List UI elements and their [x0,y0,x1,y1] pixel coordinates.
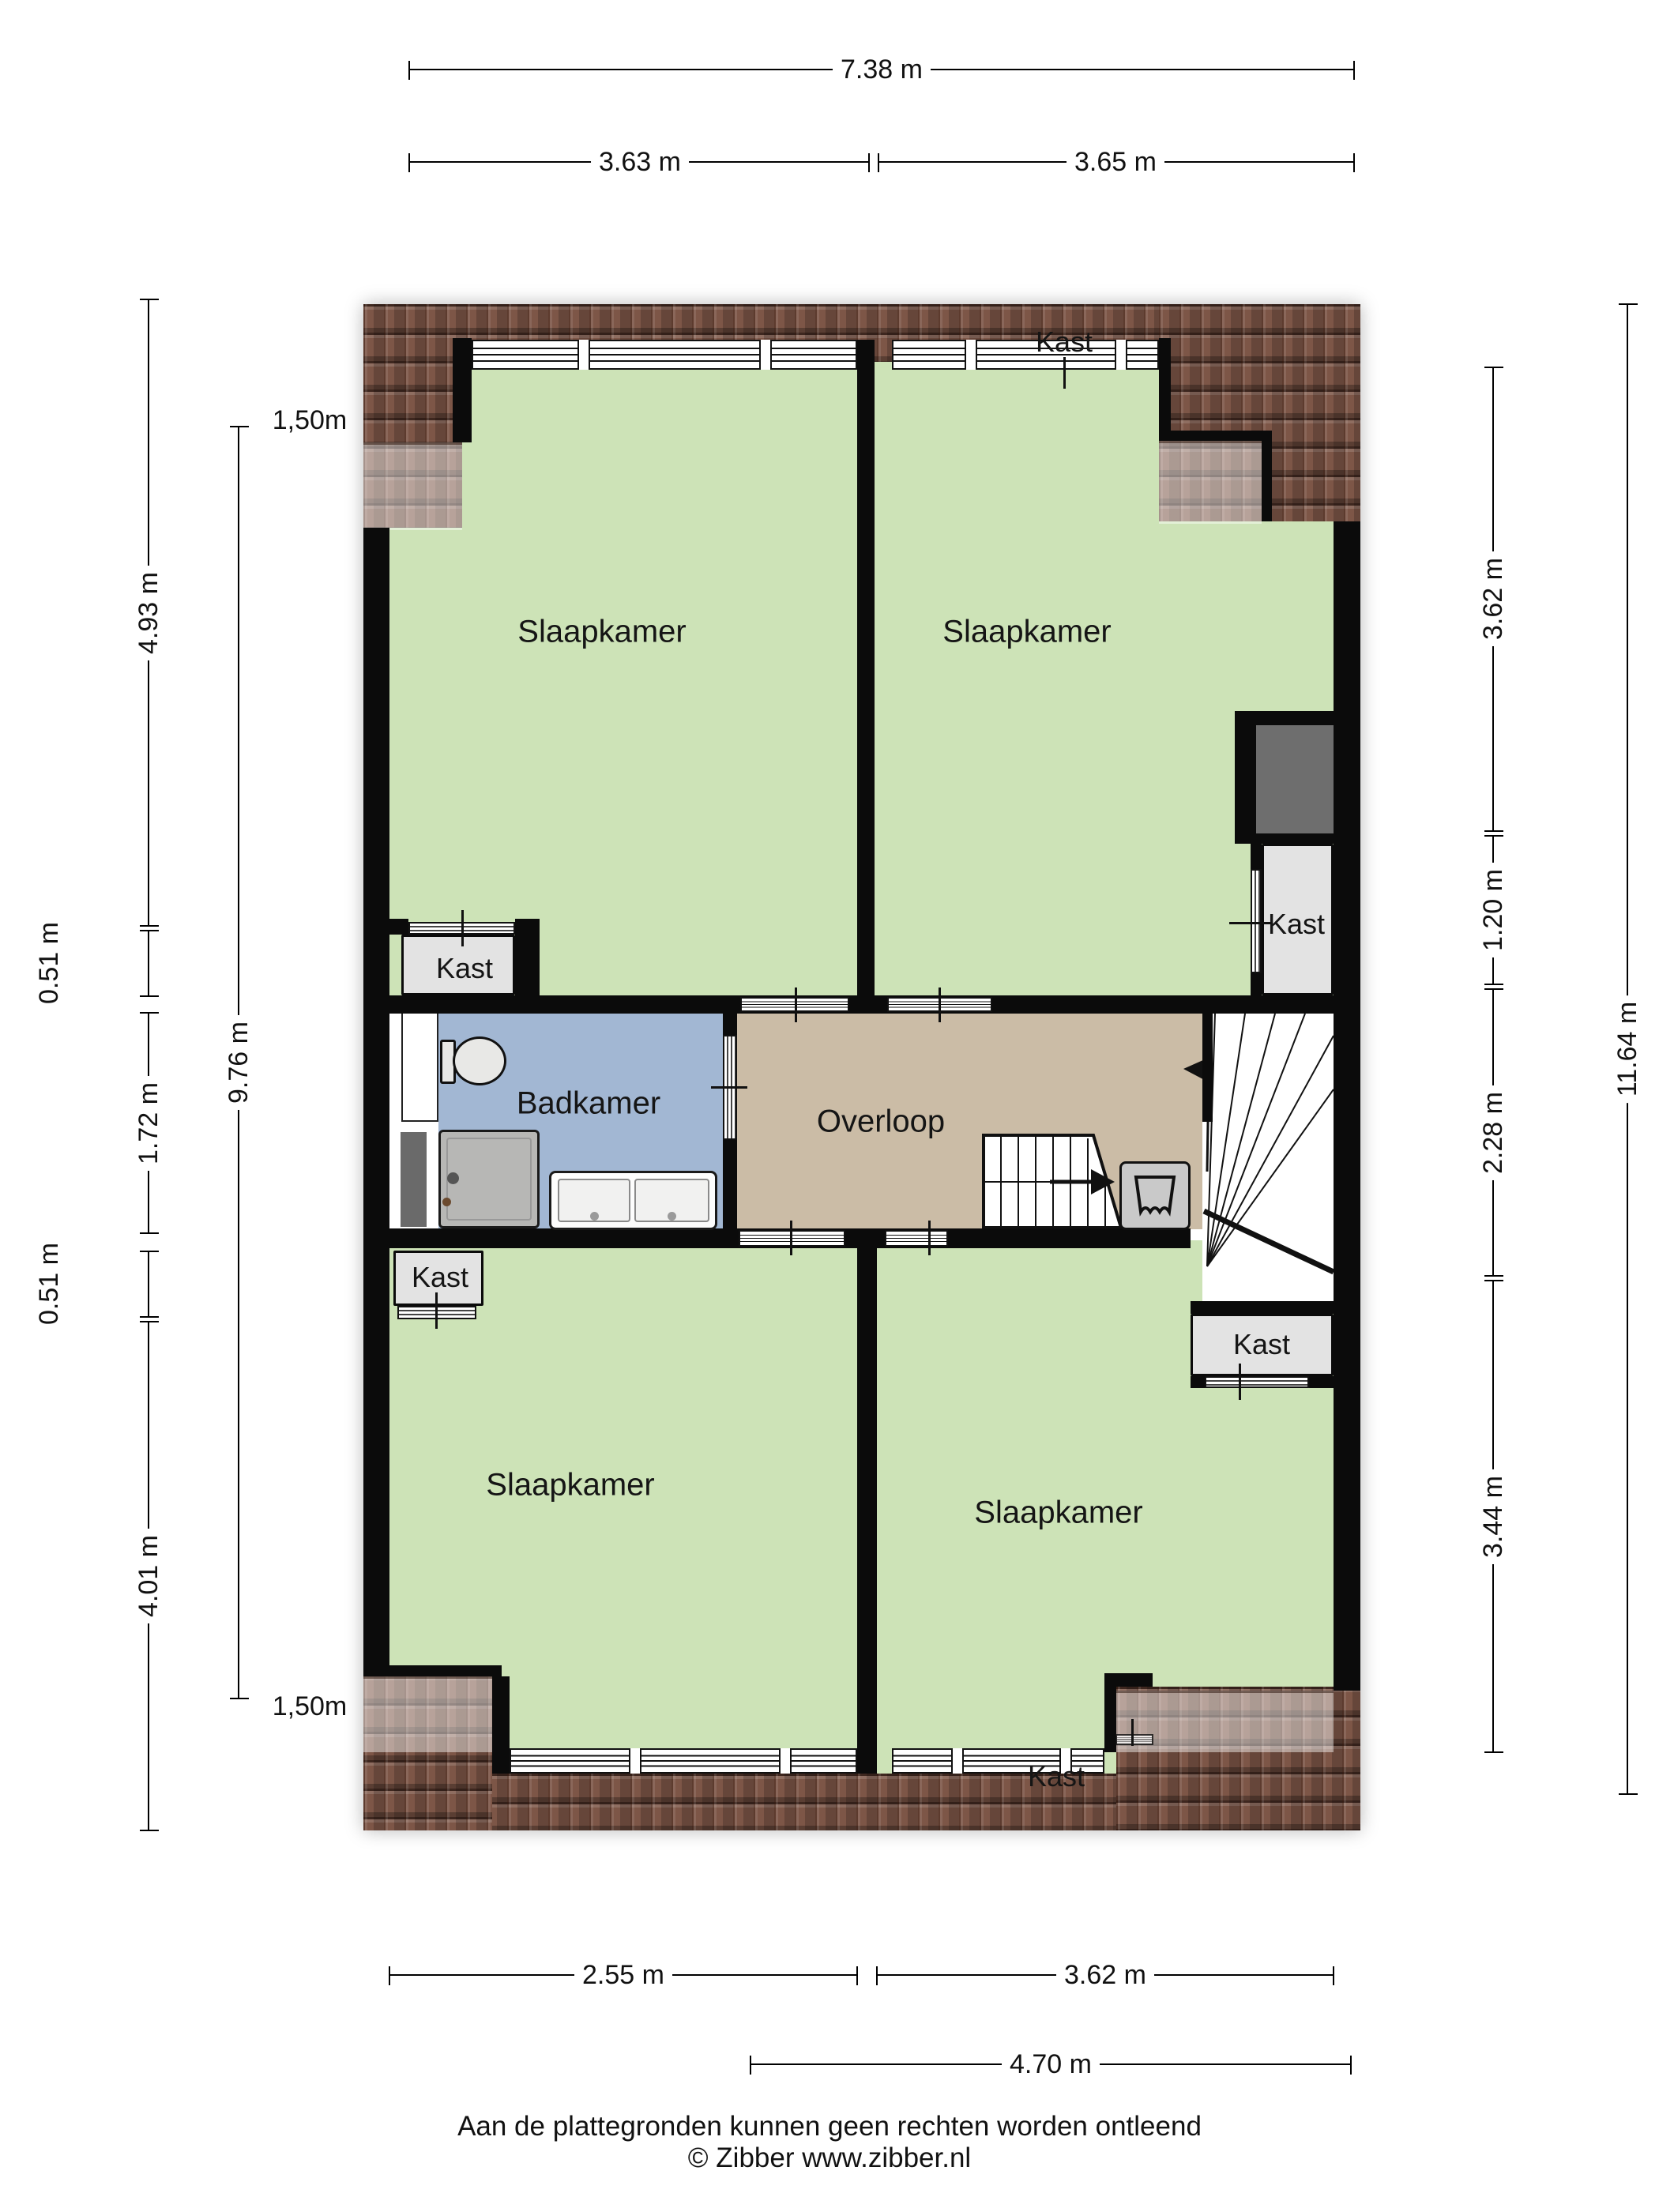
label-closet-mid-left-upper: Kast [436,952,493,985]
wall [1256,833,1334,844]
dim-top-total: 7.38 m [833,55,931,85]
bathroom-void [401,1011,438,1122]
dim-bottom-right-segment: 3.62 m [1056,1960,1154,1990]
dim-tick [140,925,159,927]
label-closet-right-lower: Kast [1233,1328,1290,1361]
dim-tick [1333,1966,1334,1985]
leader-line [1131,1719,1134,1746]
dim-left-segment-1: 0.51 m [36,922,62,1004]
window-mullion [759,340,772,370]
label-bedroom-bottom-right: Slaapkamer [974,1495,1142,1531]
dim-line-left-seg [148,931,149,996]
dim-tick [1484,1751,1503,1753]
wall [1191,1301,1334,1314]
window-roof-bottom-right [1115,1734,1153,1745]
dim-tick [1484,367,1503,368]
dim-tick [140,995,159,997]
roof-lowheight-bottom-left [363,1676,492,1752]
wall [1191,1376,1205,1388]
wall [363,1665,502,1676]
dim-top-right-segment: 3.65 m [1066,147,1164,177]
leader-line [795,987,797,1022]
wall-divider-bottom [857,1242,877,1774]
label-bedroom-top-right: Slaapkamer [942,615,1111,650]
dim-tick [408,61,410,80]
window-mullion [577,340,590,370]
dim-tick [1350,2056,1352,2075]
dim-tick [750,2056,751,2075]
dim-left-inner-total: 9.76 m [222,1015,255,1110]
washbasin-tap-left-icon [590,1212,599,1221]
window-landing-bottom-right [885,1230,948,1247]
dim-tick [408,153,410,172]
dim-tick [140,1830,159,1831]
dim-tick [140,1316,159,1318]
label-closet-roof-bottom: Kast [1028,1760,1085,1793]
leader-line [1229,922,1270,924]
dim-tick [140,1232,159,1234]
leader-line [1063,357,1066,389]
dim-bottom-total: 4.70 m [1002,2049,1100,2079]
dim-right-segment-2: 2.28 m [1477,1085,1510,1180]
leader-line [790,1221,792,1255]
label-bedroom-bottom-left: Slaapkamer [486,1468,654,1503]
wall [1104,1673,1153,1687]
roof-lowheight-top-right [1159,441,1262,524]
label-bathroom: Badkamer [517,1086,660,1122]
window-mullion [951,1748,964,1774]
wall [1171,431,1262,441]
dim-bottom-left-segment: 2.55 m [574,1960,672,1990]
dim-tick [1484,835,1503,837]
window-mullion [965,340,977,370]
dim-tick [1619,1793,1638,1795]
chimney-niche [1256,723,1334,835]
leader-line [1239,1364,1241,1400]
wall [515,919,540,1009]
wall [492,1676,510,1774]
dim-tick [876,1966,878,1985]
wall [389,919,408,935]
wall [1235,711,1334,725]
dim-tick [1484,988,1503,990]
window-top-left [472,340,857,370]
leader-line [461,910,464,946]
shower-head-icon [447,1172,459,1184]
dim-line-left-seg [148,1251,149,1317]
wall-outer-right [1334,521,1360,1691]
dim-tick [1484,830,1503,832]
footer-disclaimer: Aan de plattegronden kunnen geen rechten… [0,2111,1659,2142]
window-mullion [629,1748,641,1774]
door-closet-right-mid [1251,869,1262,973]
window-top-right [892,340,1159,370]
boiler-icon [1130,1174,1180,1218]
dim-tick [1353,61,1355,80]
dim-top-left-segment: 3.63 m [591,147,689,177]
wall-outer-left [363,528,389,1675]
label-landing: Overloop [817,1104,945,1140]
door-closet-right-lower [1205,1376,1309,1388]
dim-left-segment-0: 4.93 m [132,566,165,660]
dim-tick [230,426,249,427]
label-closet-roof-top: Kast [1036,325,1093,359]
dim-tick [1484,1280,1503,1281]
dim-left-segment-3: 0.51 m [36,1243,62,1325]
dim-tick [856,1966,858,1985]
dim-tick [1353,153,1355,172]
dim-tick [1484,984,1503,985]
shower-inner-line [446,1138,532,1221]
dim-left-segment-4: 4.01 m [132,1529,165,1623]
toilet-bowl [453,1036,506,1085]
leader-line [928,1221,931,1255]
window-mullion [779,1748,792,1774]
leader-line [435,1292,438,1329]
wall [723,1014,737,1035]
dim-tick [140,1251,159,1252]
wall [1235,723,1256,844]
wall [1202,1014,1213,1122]
leader-line [939,987,941,1022]
floorplan-canvas: Slaapkamer Slaapkamer Slaapkamer Slaapka… [0,0,1659,2212]
label-closet-mid-left-lower: Kast [412,1261,468,1294]
height-mark-bottom: 1,50m [273,1693,348,1720]
leader-line [711,1086,747,1089]
shower-tap-icon [442,1198,451,1206]
dim-right-segment-0: 3.62 m [1477,551,1510,646]
window-mullion [1115,340,1127,370]
washbasin-tap-right-icon [668,1212,676,1221]
dim-right-outer-total: 11.64 m [1611,995,1644,1103]
wall-divider-top [857,340,875,1014]
dim-tick [140,299,159,300]
dim-tick [878,153,879,172]
dim-tick [389,1966,390,1985]
dim-tick [868,153,870,172]
label-closet-right-mid: Kast [1268,908,1325,941]
dim-tick [230,1698,249,1699]
dim-tick [140,1012,159,1014]
wall [453,338,472,442]
wall [1104,1687,1116,1752]
wall [1309,1376,1334,1388]
footer-copyright: © Zibber www.zibber.nl [0,2142,1659,2174]
wall [1159,338,1171,441]
dim-tick [140,1321,159,1322]
wall [1262,431,1272,521]
height-mark-top: 1,50m [273,407,348,434]
window-bottom-left [510,1748,857,1774]
label-bedroom-top-left: Slaapkamer [517,615,686,650]
dim-right-segment-3: 3.44 m [1477,1469,1510,1564]
dim-left-segment-2: 1.72 m [132,1076,165,1171]
bathroom-duct [401,1132,427,1227]
dim-right-segment-1: 1.20 m [1477,863,1510,957]
roof-lowheight-top-left [363,442,462,530]
dim-tick [140,930,159,931]
dim-tick [1484,1275,1503,1277]
dim-tick [1619,303,1638,305]
